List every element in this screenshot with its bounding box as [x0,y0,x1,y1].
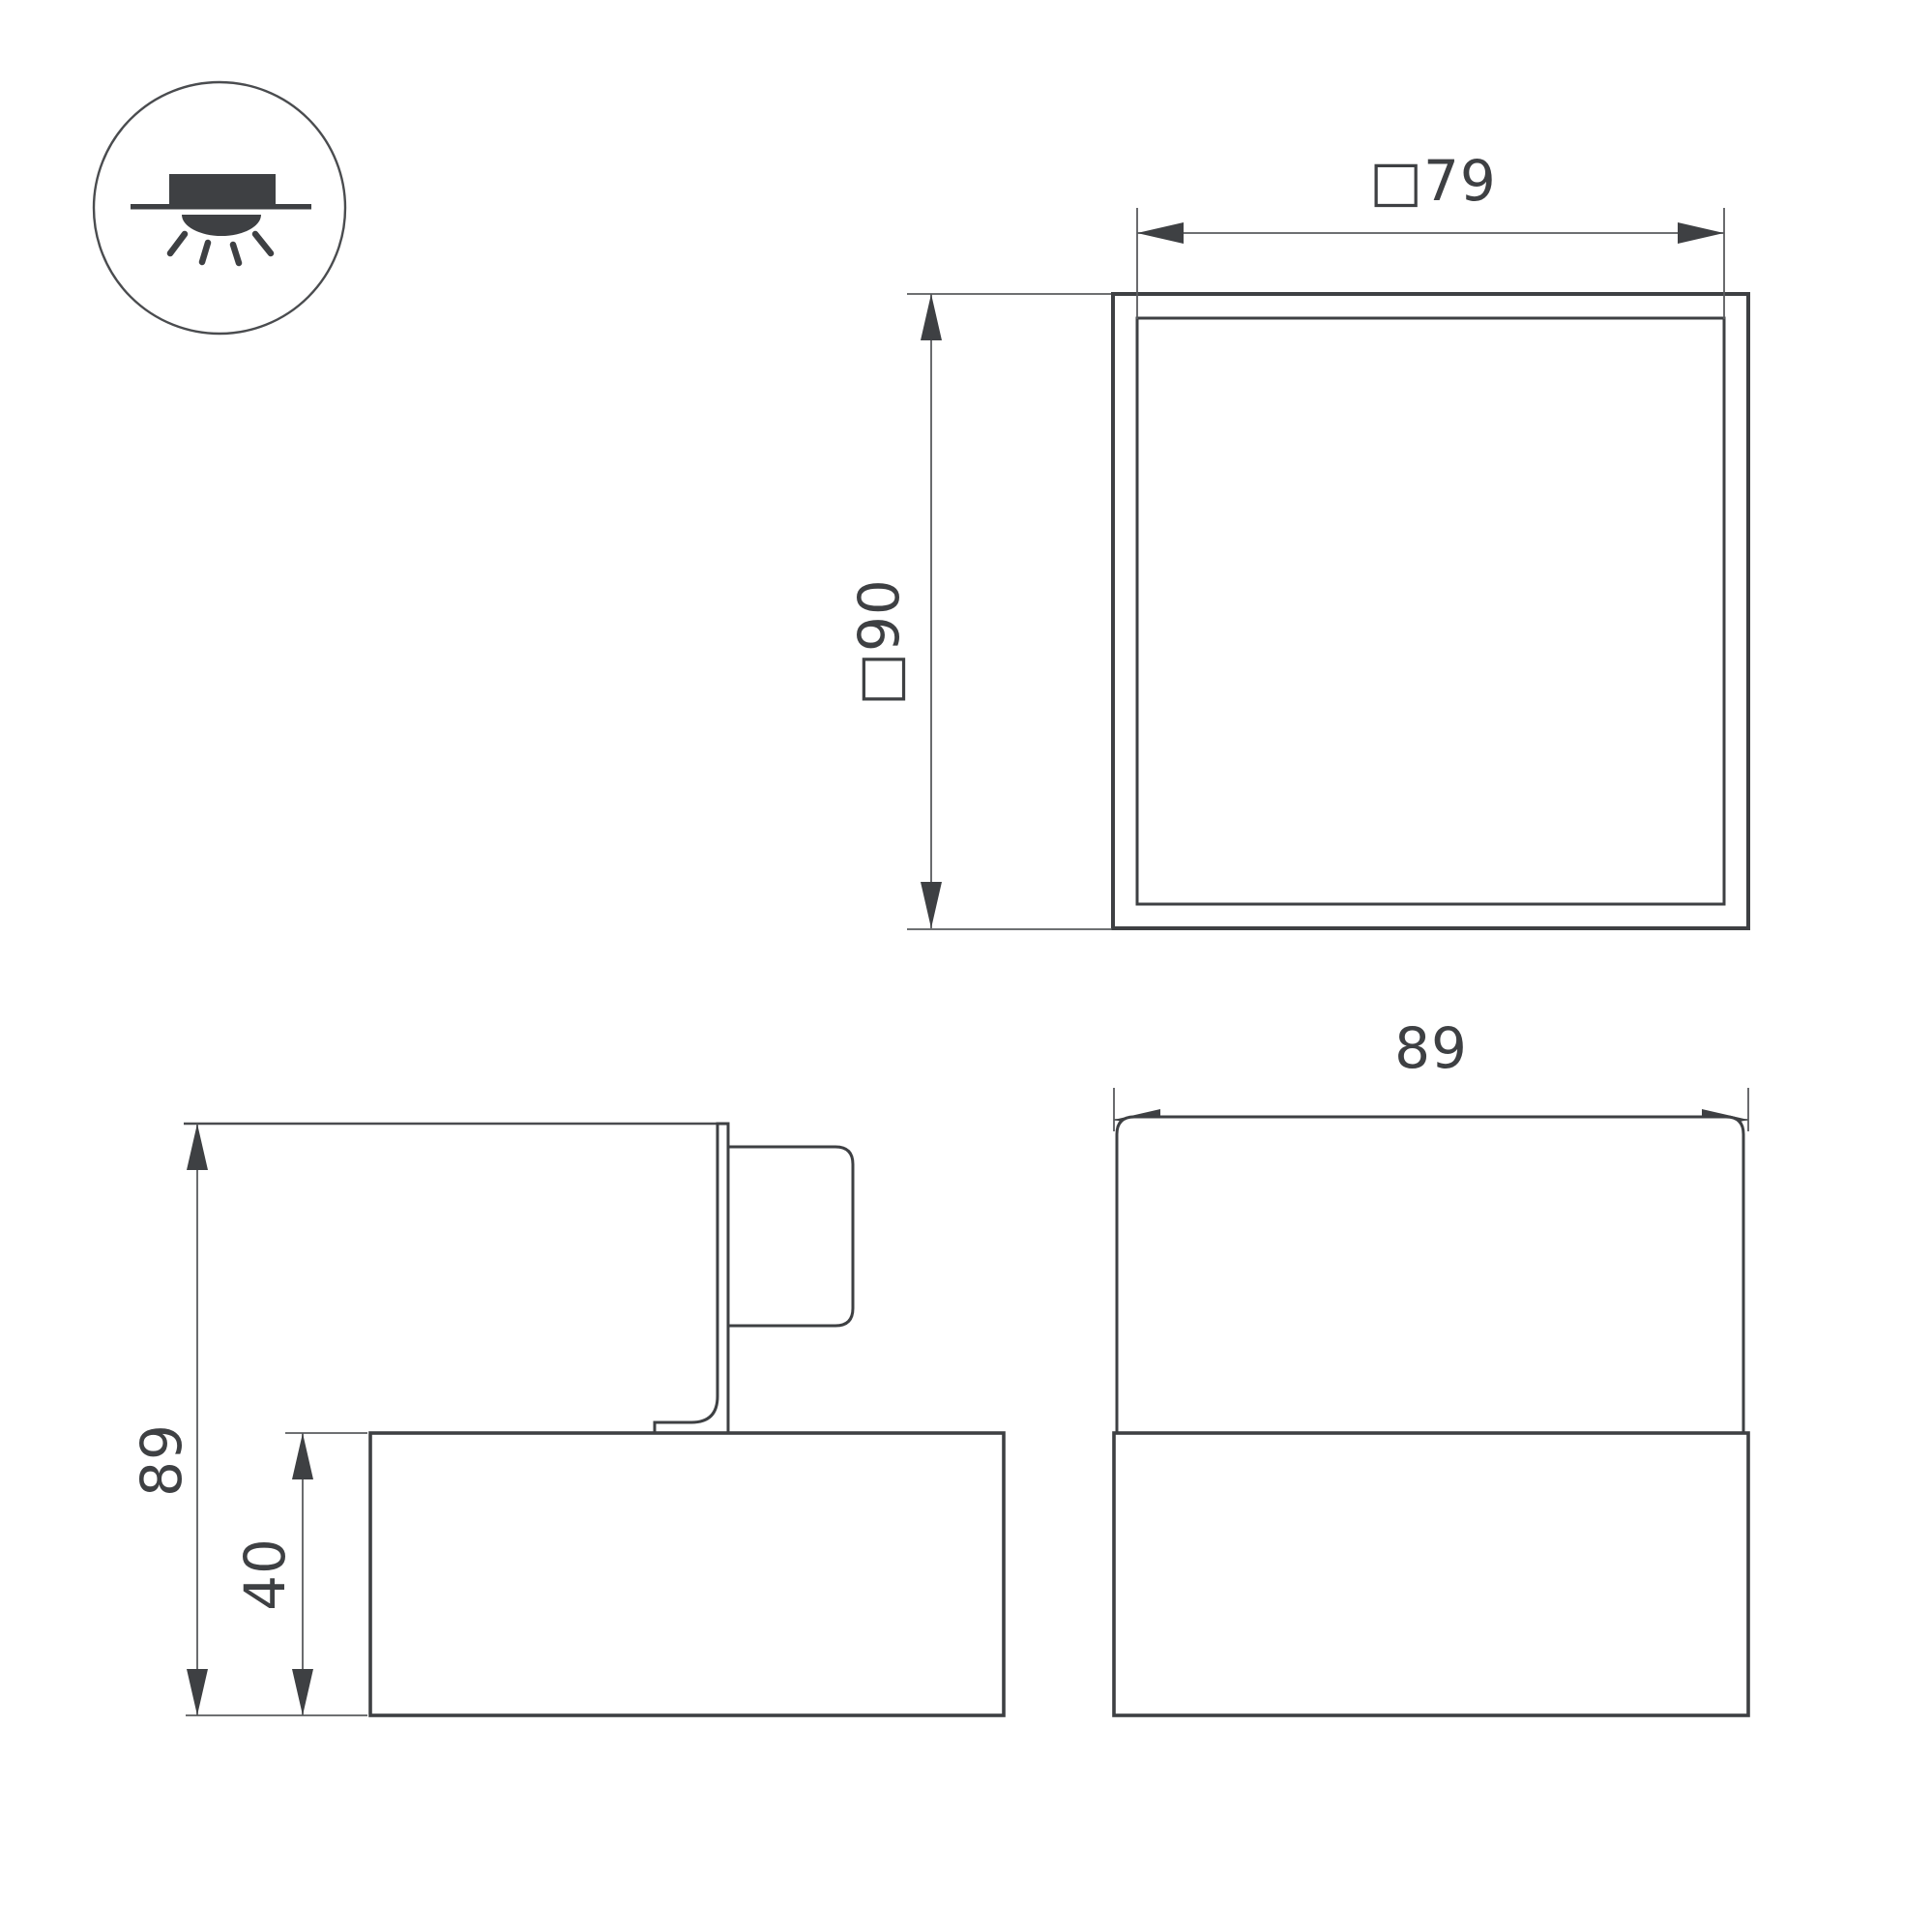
mounting-bracket [655,1124,728,1433]
plan-height-dimension: □90 [846,294,1112,929]
ceiling-line-glyph [131,204,311,210]
mount-type-icon [94,82,345,334]
arrow-up-icon [921,294,942,340]
front-head [1117,1117,1743,1433]
side-body-height-label: 40 [232,1537,298,1611]
front-body [1114,1433,1748,1715]
dimension-drawing: □79 □90 89 [0,0,1932,1932]
arrow-left-icon [1137,222,1184,244]
plan-inner-square [1137,318,1724,904]
light-dome-glyph [182,215,261,236]
arrow-down-icon [921,882,942,928]
arrow-right-icon [1678,222,1724,244]
arrow-down-icon [187,1669,208,1715]
light-rays-icon [170,234,271,263]
side-height-label: 89 [129,1423,194,1497]
side-body-height-dimension: 40 [232,1433,367,1715]
side-view: 89 40 [129,1124,1004,1715]
plan-view: □79 □90 [846,148,1748,929]
arrow-up-icon [187,1124,208,1170]
fixture-body-glyph [169,174,276,204]
plan-width-label: □79 [1369,148,1497,214]
plan-height-label: □90 [846,578,912,706]
front-width-label: 89 [1394,1015,1468,1081]
driver-box [728,1147,853,1326]
front-view: 89 [1114,1015,1748,1715]
front-width-dimension: 89 [1114,1015,1748,1131]
arrow-down-icon [292,1669,313,1715]
side-body [370,1433,1004,1715]
arrow-up-icon [292,1433,313,1479]
side-height-dimension: 89 [129,1124,367,1715]
